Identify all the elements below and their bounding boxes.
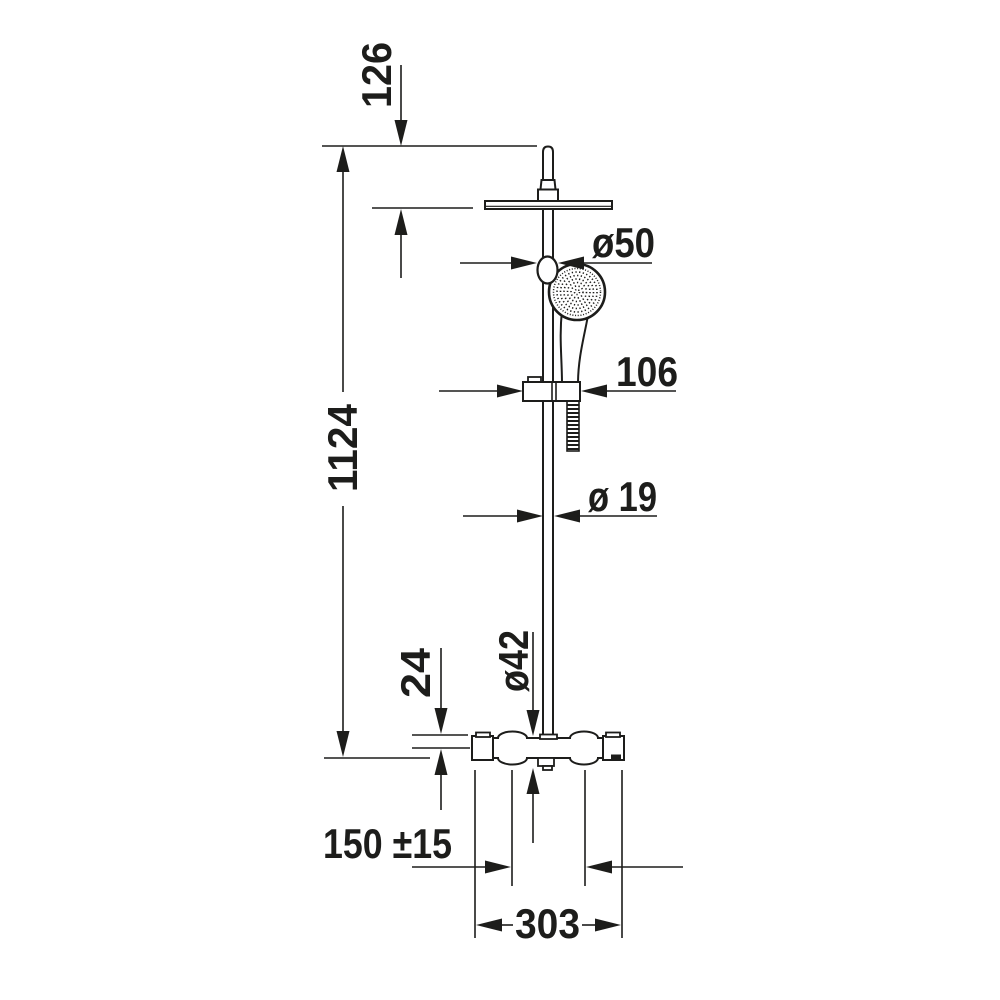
label-150: 150 ±15 [323,820,452,867]
arrowhead [517,510,543,523]
valve-left-cap [472,736,493,760]
valve-bottom-outlet [538,758,554,766]
arrowhead [435,749,448,775]
label-303: 303 [515,900,580,947]
arrowhead [595,919,621,932]
valve-right-notch [611,755,621,760]
arrowhead [527,710,540,736]
dimension-labels: 126 1124 ø50 106 ø 19 24 ø42 150 ±15 303 [319,42,678,947]
technical-drawing-canvas: 126 1124 ø50 106 ø 19 24 ø42 150 ±15 303 [0,0,1000,1000]
arrowhead [527,768,540,794]
valve-bottom-outlet-tab [543,766,552,770]
arrowhead [581,385,607,398]
dimension-150 [412,861,683,874]
arrowhead [586,861,612,874]
arrowhead [554,510,580,523]
arrowhead [511,257,537,270]
label-o50: ø50 [592,219,655,266]
label-o19: ø 19 [588,473,657,520]
valve-inlet-collar [540,735,557,740]
shower-hose [567,401,579,451]
arrowhead [497,385,523,398]
arrowhead [337,731,350,757]
valve-right-tab [606,733,620,738]
arrowhead [485,861,511,874]
riser-pipe [543,147,553,741]
thermostat-valve [472,732,624,770]
shower-system-drawing: 126 1124 ø50 106 ø 19 24 ø42 150 ±15 303 [0,0,1000,1000]
label-106: 106 [616,348,678,395]
arrowhead [337,146,350,172]
arrowhead [476,919,502,932]
label-24: 24 [392,647,439,698]
label-126: 126 [353,42,400,108]
arrowhead [395,209,408,235]
valve-left-tab [476,733,490,738]
pivot-ball-knob [538,257,558,284]
label-o42: ø42 [490,630,537,692]
rain-shower-plate [485,201,612,209]
arrowhead [395,120,408,146]
label-1124: 1124 [319,403,366,492]
arrowhead [435,708,448,734]
pipe-collar-upper [541,180,556,190]
